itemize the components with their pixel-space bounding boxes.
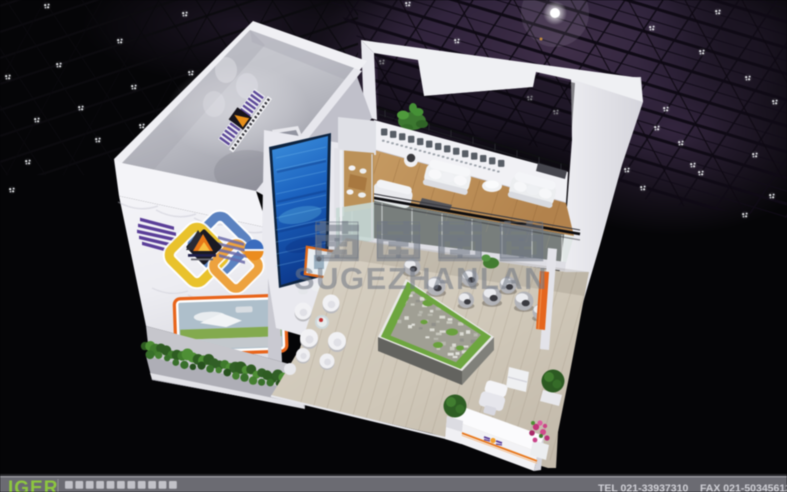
svg-text:IGER: IGER [8,478,58,492]
svg-text:TEL 021-33937310 FAX 021-50: TEL 021-33937310 FAX 021-50345612 [598,483,787,492]
svg-text:SUGEZHANLAN: SUGEZHANLAN [294,261,548,296]
